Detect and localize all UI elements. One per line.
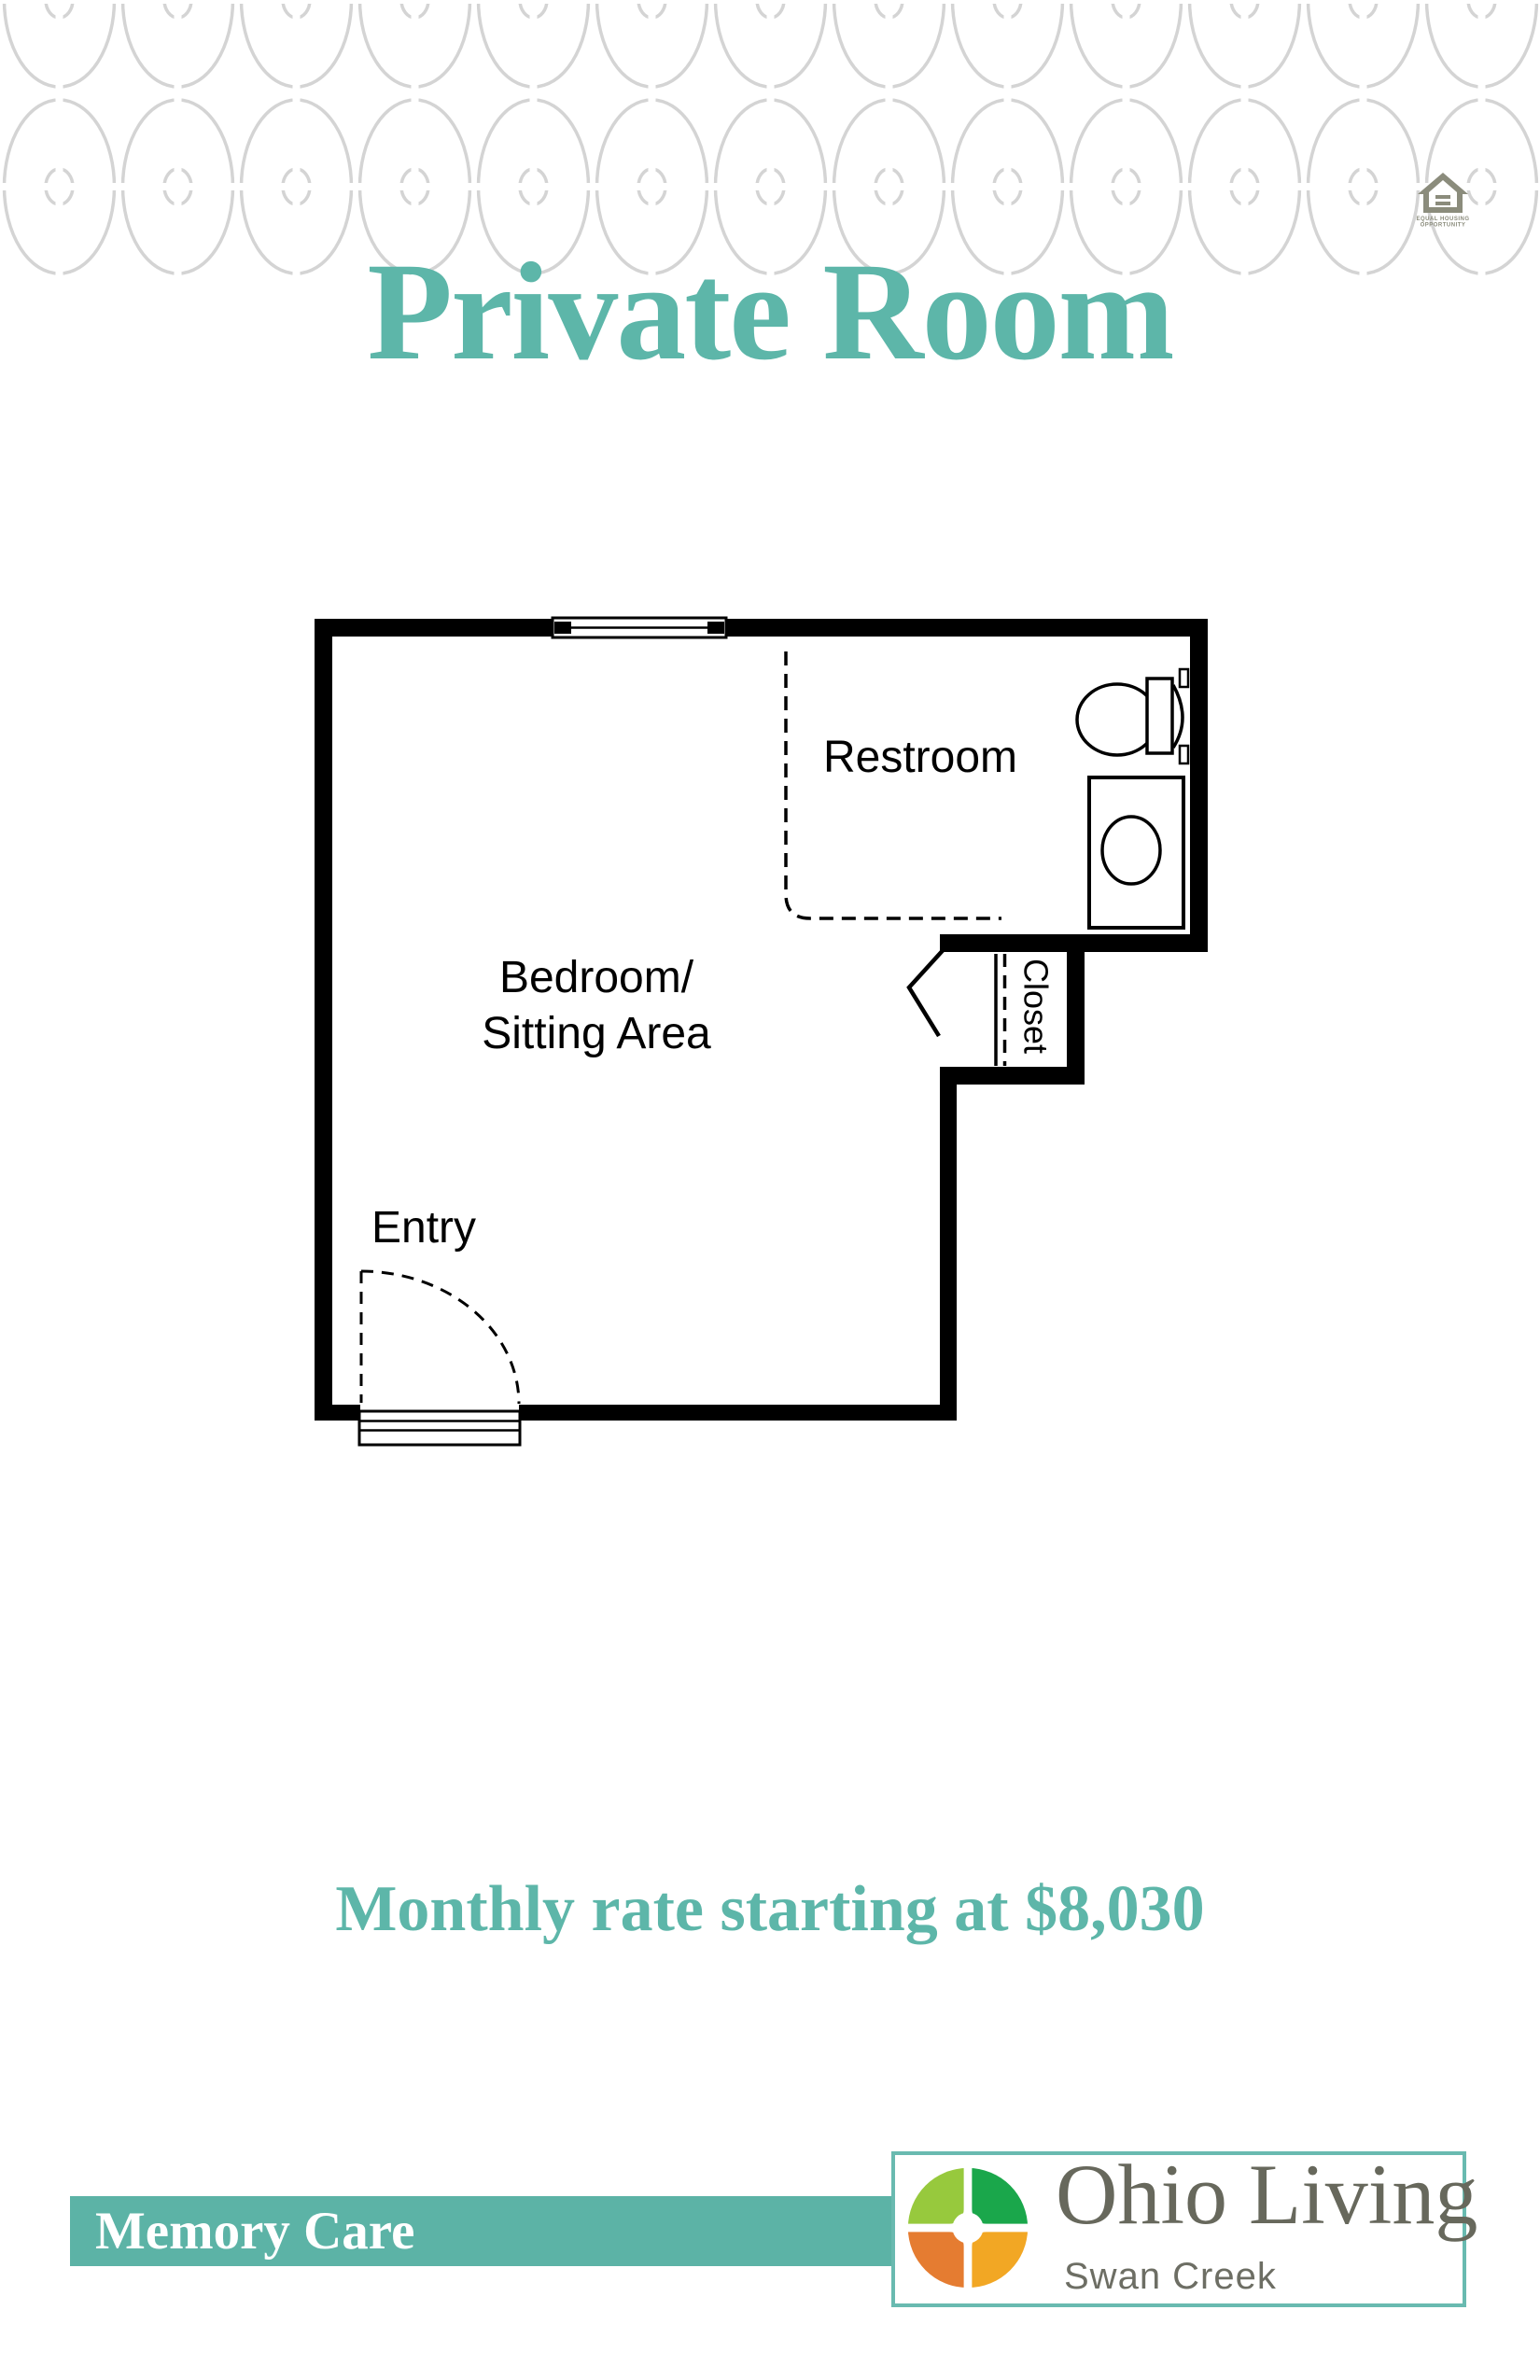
brand-box: Ohio Living Swan Creek <box>891 2151 1466 2307</box>
entry-door-swing-icon <box>361 1271 519 1404</box>
entry-steps-icon <box>359 1411 520 1445</box>
bedroom-label-line1: Bedroom/ <box>499 953 694 1002</box>
closet-label: Closet <box>1017 959 1056 1054</box>
flyer-page: EQUAL HOUSING OPPORTUNITY Private Room <box>0 0 1540 2380</box>
entry-label: Entry <box>371 1203 476 1253</box>
bedroom-label-line2: Sitting Area <box>482 1009 711 1058</box>
closet-door-open-icon <box>909 946 946 1036</box>
restroom-label: Restroom <box>823 733 1017 782</box>
ohio-living-logo-icon <box>903 2163 1033 2293</box>
floor-plan-walls <box>315 619 1208 1421</box>
care-level-label: Memory Care <box>70 2196 894 2266</box>
toilet-icon <box>1077 669 1188 763</box>
restroom-boundary-dashed-line <box>786 651 1001 918</box>
monthly-rate-text: Monthly rate starting at $8,030 <box>0 1877 1540 1942</box>
care-level-bar: Memory Care <box>70 2196 894 2266</box>
brand-name: Ohio Living <box>1056 2151 1477 2237</box>
window-icon <box>553 618 726 637</box>
brand-location: Swan Creek <box>1064 2258 1277 2295</box>
floor-plan: Restroom Bedroom/ Sitting Area Entry Clo… <box>0 0 1540 2380</box>
sink-icon <box>1089 777 1183 928</box>
